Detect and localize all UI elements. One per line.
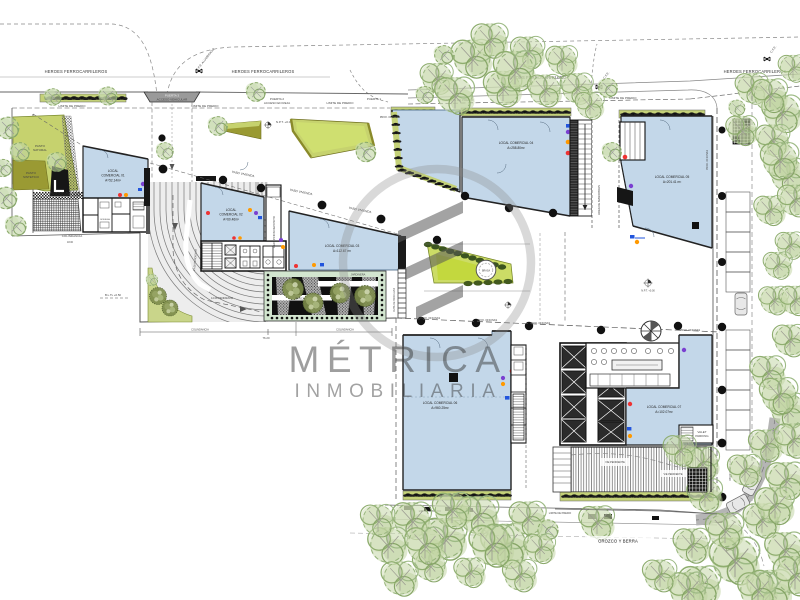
svg-text:PARKING: PARKING xyxy=(695,434,709,438)
svg-text:NATURAL: NATURAL xyxy=(33,148,47,152)
svg-text:COMERCIAL 01: COMERCIAL 01 xyxy=(101,174,124,178)
svg-text:HEROES FERROCARRILEROS: HEROES FERROCARRILEROS xyxy=(45,69,108,74)
svg-text:HEROES FERROCARRILEROS: HEROES FERROCARRILEROS xyxy=(724,69,787,74)
svg-text:SINTETICO: SINTETICO xyxy=(23,175,40,179)
svg-text:LIMITE DE PREDIO: LIMITE DE PREDIO xyxy=(191,104,219,108)
svg-text:LOCAL COMERCIAL 07: LOCAL COMERCIAL 07 xyxy=(647,405,682,409)
svg-text:HEROES FERROCARRILEROS: HEROES FERROCARRILEROS xyxy=(232,69,295,74)
svg-text:VIE PENDIENTE: VIE PENDIENTE xyxy=(663,473,682,476)
svg-text:LOCAL: LOCAL xyxy=(226,208,237,212)
svg-text:COLINDANCIA: COLINDANCIA xyxy=(62,234,83,238)
svg-text:LIMITE DE PREDIO: LIMITE DE PREDIO xyxy=(549,512,572,515)
svg-text:A=201.41 m²: A=201.41 m² xyxy=(663,180,681,184)
svg-text:LIMITE DE PREDIO: LIMITE DE PREDIO xyxy=(609,96,637,100)
svg-text:LOCAL COMERCIAL 05: LOCAL COMERCIAL 05 xyxy=(655,175,690,179)
svg-text:14.08 PENDIENTE: 14.08 PENDIENTE xyxy=(211,296,233,300)
svg-text:PROX. OFICINAS: PROX. OFICINAS xyxy=(706,150,709,171)
svg-text:A=60.46m²: A=60.46m² xyxy=(223,218,239,222)
svg-text:OROZCO Y BERRA: OROZCO Y BERRA xyxy=(598,539,638,544)
svg-text:MÉTRICA: MÉTRICA xyxy=(289,339,508,380)
svg-text:PROX. OFICINAS: PROX. OFICINAS xyxy=(380,116,401,119)
svg-text:LIMITE DE PREDIO: LIMITE DE PREDIO xyxy=(58,104,86,108)
svg-text:A=960.25m²: A=960.25m² xyxy=(431,406,448,410)
svg-text:JARDINERA: JARDINERA xyxy=(351,273,366,277)
svg-text:COLINDANCIA: COLINDANCIA xyxy=(336,328,354,332)
svg-text:A=52.14m²: A=52.14m² xyxy=(105,179,121,183)
svg-text:N.P.T. +0.00: N.P.T. +0.00 xyxy=(641,290,655,293)
svg-text:PUERTA 1: PUERTA 1 xyxy=(367,97,382,101)
svg-text:COMERCIAL 02: COMERCIAL 02 xyxy=(219,213,242,217)
svg-text:LOCAL: LOCAL xyxy=(108,169,119,173)
svg-text:LOCAL COMERCIAL 04: LOCAL COMERCIAL 04 xyxy=(499,141,534,145)
svg-text:PROX. OFICINAS: PROX. OFICINAS xyxy=(680,329,701,332)
svg-text:ACCESO EN REJA: ACCESO EN REJA xyxy=(264,101,290,105)
svg-text:18.00: 18.00 xyxy=(67,241,74,244)
svg-text:AREA DE MANIOBRAS: AREA DE MANIOBRAS xyxy=(597,185,601,215)
svg-text:LIMITE DE PREDIO: LIMITE DE PREDIO xyxy=(326,101,354,105)
svg-text:ACCESO VEHICULAR: ACCESO VEHICULAR xyxy=(157,98,189,102)
svg-text:RECEPCION DEPOSITO: RECEPCION DEPOSITO xyxy=(272,215,276,248)
svg-text:B.L.TL +0.50: B.L.TL +0.50 xyxy=(105,293,121,297)
svg-text:COLINDANCIA: COLINDANCIA xyxy=(191,328,209,332)
svg-text:INMOBILIARIA: INMOBILIARIA xyxy=(295,381,502,402)
svg-text:BODEGA: BODEGA xyxy=(100,218,110,221)
svg-text:A=258.80m²: A=258.80m² xyxy=(507,146,524,150)
svg-text:76.20: 76.20 xyxy=(263,336,270,340)
svg-text:BANCA: BANCA xyxy=(296,297,305,301)
svg-text:VIE PENDIENTE: VIE PENDIENTE xyxy=(605,460,625,464)
svg-text:RUTA DE BICICLETA: RUTA DE BICICLETA xyxy=(393,288,396,312)
svg-text:A=102.07m²: A=102.07m² xyxy=(655,410,672,414)
svg-text:BRASA: BRASA xyxy=(482,270,491,273)
svg-text:N.P.T. +0.00: N.P.T. +0.00 xyxy=(276,120,293,124)
